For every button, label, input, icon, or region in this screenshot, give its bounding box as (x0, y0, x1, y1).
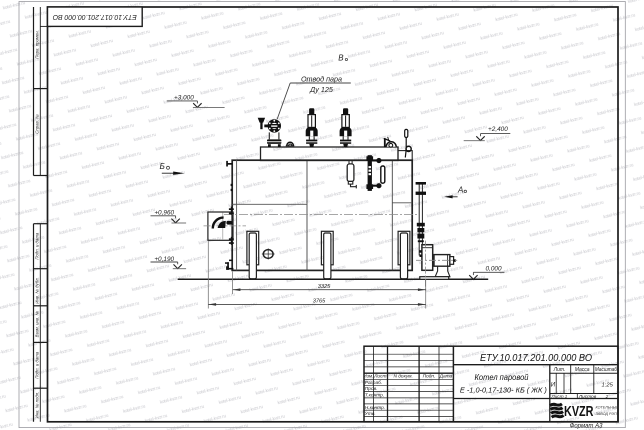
svg-text:1:25: 1:25 (602, 383, 614, 389)
svg-text:Масштаб: Масштаб (595, 367, 617, 373)
svg-text:0,000: 0,000 (486, 265, 502, 272)
svg-text:Инв. № дубл.: Инв. № дубл. (34, 277, 39, 303)
svg-text:3765: 3765 (313, 299, 326, 305)
svg-text:Подп. и дата: Подп. и дата (34, 232, 39, 260)
svg-text:Ду 125: Ду 125 (309, 85, 334, 94)
svg-text:Б: Б (160, 162, 166, 171)
svg-text:Отвод пара: Отвод пара (301, 74, 342, 83)
svg-text:Лист: Лист (373, 374, 386, 380)
svg-text:Т.контр.: Т.контр. (365, 392, 384, 398)
svg-text:Дата: Дата (439, 374, 453, 380)
svg-text:KVZR: KVZR (564, 404, 594, 420)
svg-text:Утв.: Утв. (365, 411, 376, 417)
svg-text:1: 1 (565, 394, 568, 400)
svg-text:Масса: Масса (575, 367, 590, 373)
svg-text:Лит.: Лит. (553, 367, 566, 373)
svg-text:Формат А3: Формат А3 (570, 424, 603, 430)
svg-text:Е -1,0-0,17-130- КБ ( ЖК ): Е -1,0-0,17-130- КБ ( ЖК ) (460, 386, 547, 395)
svg-text:КОТЕЛЬНЫЙ: КОТЕЛЬНЫЙ (596, 406, 620, 410)
svg-text:Справ. №: Справ. № (34, 114, 39, 134)
svg-text:В: В (338, 54, 344, 63)
svg-text:Подп. и дата: Подп. и дата (34, 351, 39, 379)
svg-text:А: А (457, 185, 463, 194)
svg-text:2: 2 (605, 394, 609, 400)
svg-text:Подп.: Подп. (423, 374, 436, 380)
svg-text:+2,400: +2,400 (488, 126, 508, 133)
svg-text:Взам. инв. №: Взам. инв. № (34, 310, 39, 337)
svg-text:Котел паровой: Котел паровой (475, 373, 529, 382)
svg-text:Н.контр.: Н.контр. (365, 405, 385, 411)
svg-text:N докум.: N докум. (393, 374, 412, 380)
svg-text:Разраб.: Разраб. (365, 380, 382, 386)
svg-text:3325: 3325 (318, 284, 331, 290)
svg-text:Пров.: Пров. (365, 386, 378, 392)
svg-text:Листов: Листов (578, 394, 597, 400)
svg-text:Изм.: Изм. (363, 374, 373, 380)
svg-text:Перв. примен.: Перв. примен. (34, 30, 39, 59)
svg-text:И: И (551, 382, 556, 389)
svg-text:Лист: Лист (550, 394, 563, 400)
svg-text:ЕТУ.10.017.201.00.000 ВО: ЕТУ.10.017.201.00.000 ВО (480, 353, 592, 364)
svg-text:Инв. № подл.: Инв. № подл. (34, 392, 39, 419)
svg-text:ЕТУ.10.017.201.00.000 ВО: ЕТУ.10.017.201.00.000 ВО (52, 13, 136, 22)
svg-text:ЗАВОД РЭП: ЗАВОД РЭП (596, 412, 617, 416)
